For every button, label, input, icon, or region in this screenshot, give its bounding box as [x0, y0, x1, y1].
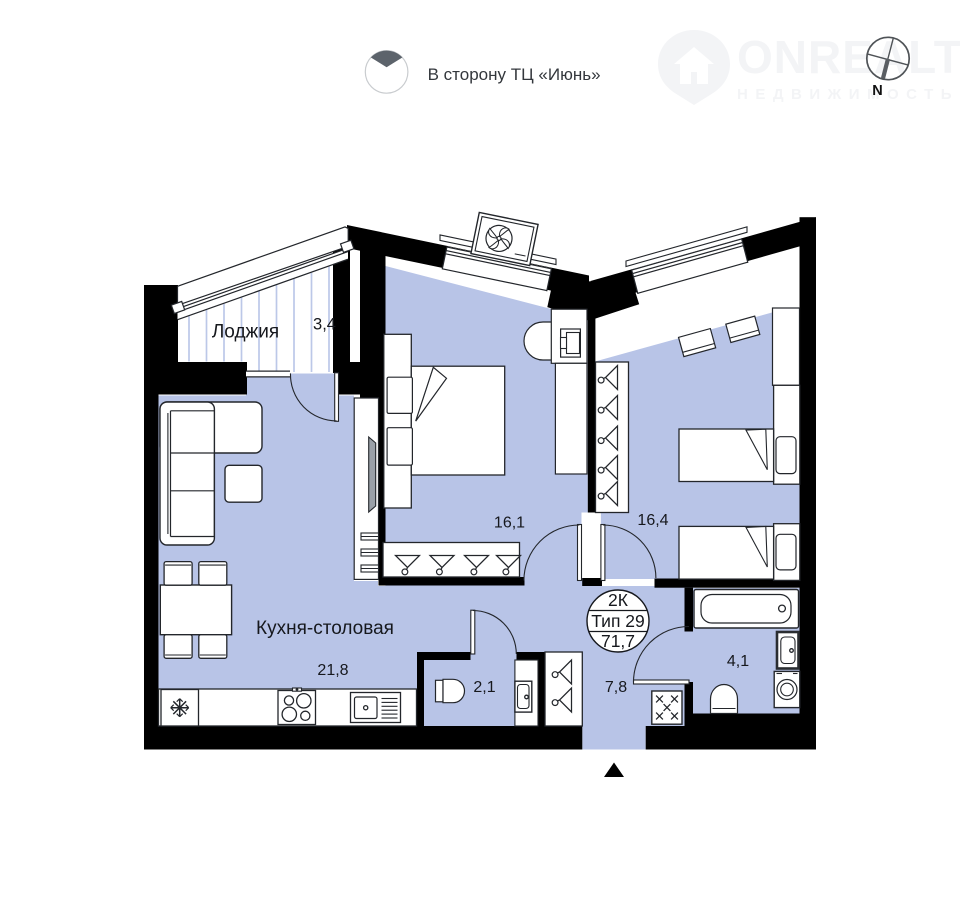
svg-text:71,7: 71,7	[601, 631, 635, 651]
svg-text:2,1: 2,1	[473, 679, 495, 696]
svg-text:В сторону ТЦ «Июнь»: В сторону ТЦ «Июнь»	[428, 65, 601, 84]
svg-text:16,4: 16,4	[637, 512, 668, 529]
svg-text:Тип 29: Тип 29	[591, 611, 645, 631]
svg-text:N: N	[872, 83, 882, 99]
svg-text:Кухня-столовая: Кухня-столовая	[256, 618, 394, 639]
svg-text:ONREALT: ONREALT	[737, 31, 960, 83]
svg-text:16,1: 16,1	[494, 515, 525, 532]
svg-text:4,1: 4,1	[727, 653, 749, 670]
svg-text:Лоджия: Лоджия	[212, 322, 279, 343]
svg-text:7,8: 7,8	[605, 679, 627, 696]
svg-text:2К: 2К	[608, 590, 629, 610]
svg-text:21,8: 21,8	[317, 662, 348, 679]
svg-text:3,4: 3,4	[313, 316, 336, 334]
svg-text:НЕДВИЖИМОСТЬ: НЕДВИЖИМОСТЬ	[737, 86, 959, 103]
